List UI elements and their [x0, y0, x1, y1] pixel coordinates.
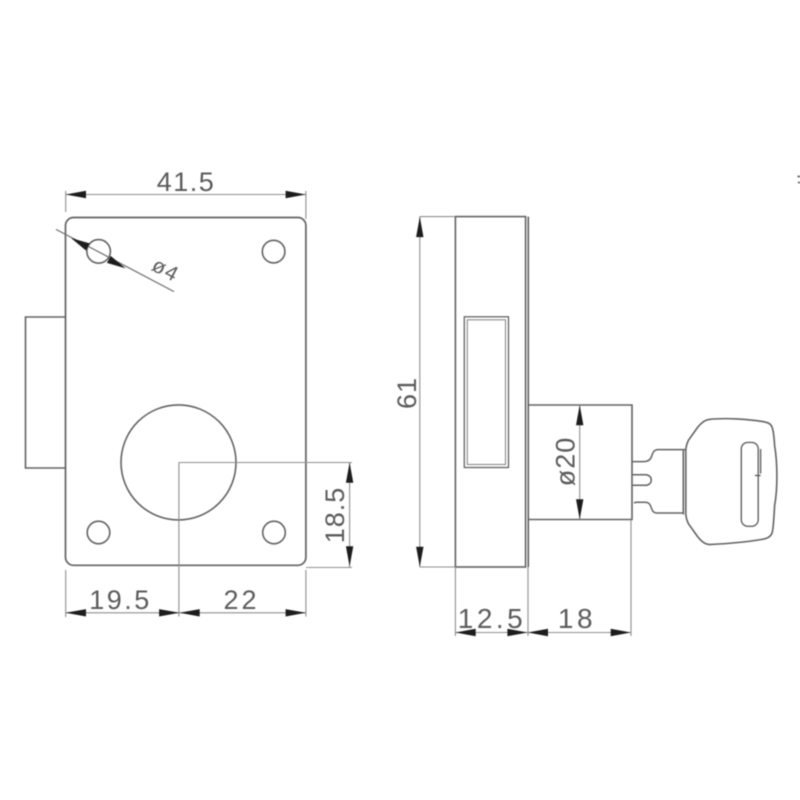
svg-text:12.5: 12.5 — [458, 603, 527, 634]
svg-text:22: 22 — [223, 585, 259, 615]
svg-text:ø20: ø20 — [551, 437, 581, 487]
svg-text:18.5: 18.5 — [320, 487, 350, 544]
svg-text:19.5: 19.5 — [89, 585, 152, 615]
svg-text:18: 18 — [558, 603, 596, 634]
svg-text:41.5: 41.5 — [157, 167, 216, 197]
svg-text:61: 61 — [392, 377, 422, 409]
